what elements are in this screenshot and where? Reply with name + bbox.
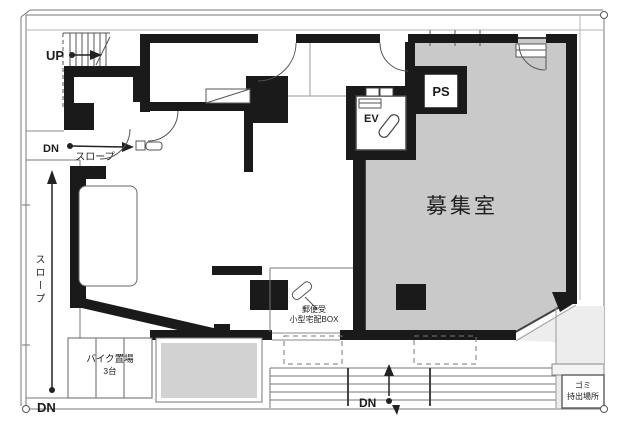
up-label: UP [46, 48, 64, 63]
vacant-room [365, 30, 576, 341]
steps-arrow [384, 364, 400, 415]
door-arc [258, 43, 296, 81]
dn-label-steps: DN [359, 396, 376, 410]
ramp-arrow [47, 170, 57, 393]
up-arrow [69, 50, 102, 60]
dn-label-ramp-bottom: DN [37, 400, 56, 415]
door-arc [148, 111, 178, 141]
mailbox-label: 郵便受 [302, 304, 326, 314]
garbage-label-line1: ゴミ [575, 380, 591, 390]
door-arc [380, 43, 408, 71]
floor-plan: DN UP DN スロープ [0, 0, 624, 430]
canopy-outline [414, 336, 476, 364]
delivery-box-label: 小型宅配BOX [290, 314, 340, 324]
tatami-room [79, 186, 137, 286]
dn-label-slope: DN [43, 143, 59, 155]
pipe-space-label: PS [432, 84, 450, 99]
garbage-label-line2: 持出場所 [567, 391, 599, 401]
terrace [156, 338, 262, 402]
bike-parking-label: バイク置場 [86, 353, 134, 365]
slope-label-horizontal: スロープ [75, 151, 114, 163]
elevator-label: EV [364, 113, 379, 125]
room-pillar [396, 284, 426, 310]
bike-capacity-label: 3台 [103, 366, 116, 376]
vacant-room-label: 募集室 [426, 195, 498, 218]
fixture-icon [136, 141, 162, 150]
slope-label-vertical: スロープ [31, 254, 46, 306]
